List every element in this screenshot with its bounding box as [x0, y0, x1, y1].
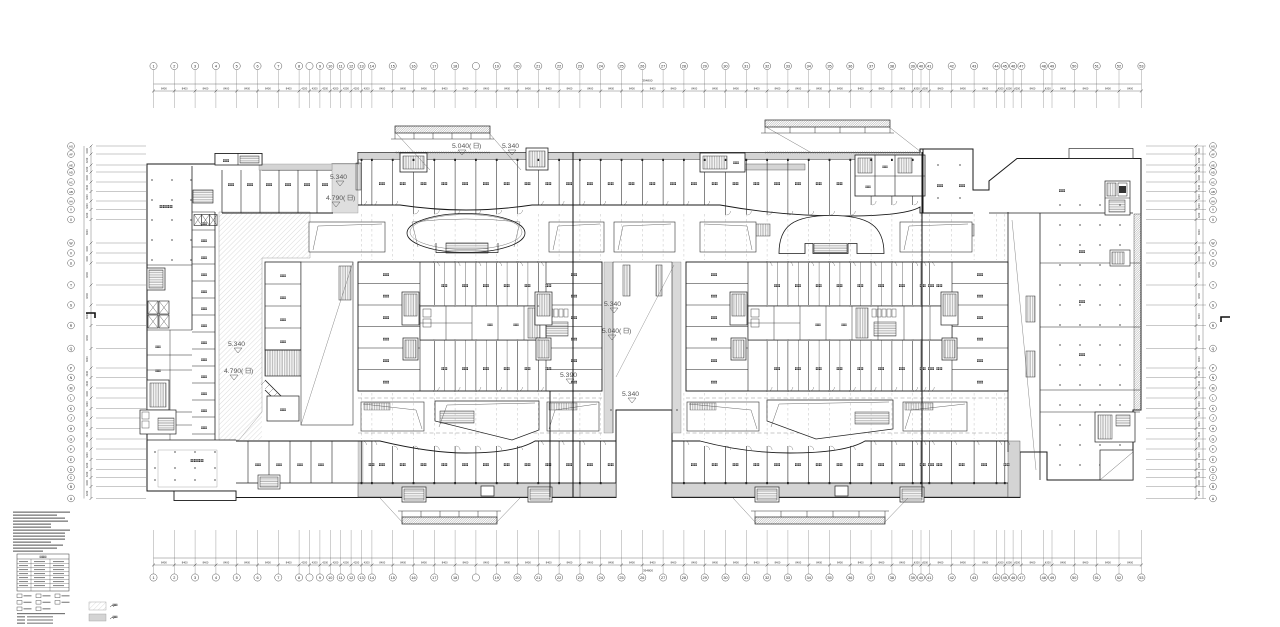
svg-text:8400: 8400 [546, 561, 552, 565]
svg-text:8400: 8400 [775, 561, 781, 565]
svg-text:L: L [1212, 396, 1214, 400]
svg-text:4200: 4200 [1198, 480, 1201, 486]
svg-text:50: 50 [1072, 576, 1076, 580]
svg-text:4200: 4200 [922, 87, 928, 91]
svg-text:T: T [1212, 283, 1214, 287]
svg-text:26: 26 [640, 64, 644, 68]
svg-text:4.790(: 4.790( [224, 368, 244, 375]
svg-text:8400: 8400 [879, 561, 885, 565]
svg-text:43: 43 [972, 64, 976, 68]
svg-text:4200: 4200 [1198, 442, 1201, 448]
svg-text:4200: 4200 [86, 431, 89, 437]
svg-text:394800: 394800 [642, 79, 652, 83]
svg-text:9: 9 [319, 64, 321, 68]
svg-text:51: 51 [1095, 64, 1099, 68]
svg-text:8400: 8400 [899, 561, 905, 565]
svg-text:AF: AF [69, 152, 73, 156]
svg-text:4200: 4200 [998, 87, 1004, 91]
svg-text:37: 37 [869, 576, 873, 580]
svg-text:8400: 8400 [244, 87, 250, 91]
svg-text:4200: 4200 [1198, 212, 1201, 218]
svg-text:52: 52 [1117, 576, 1121, 580]
svg-text:17: 17 [432, 576, 436, 580]
svg-text:21: 21 [536, 576, 540, 580]
svg-text:8400: 8400 [525, 561, 531, 565]
svg-text:4.790(: 4.790( [326, 195, 346, 202]
svg-text:4200: 4200 [86, 212, 89, 218]
svg-text:4200: 4200 [1014, 87, 1020, 91]
svg-text:48: 48 [1042, 64, 1046, 68]
svg-text:32: 32 [765, 576, 769, 580]
svg-text:46: 46 [1011, 64, 1015, 68]
svg-text:35: 35 [827, 576, 831, 580]
svg-text:14: 14 [370, 64, 374, 68]
svg-text:17: 17 [432, 64, 436, 68]
svg-text:AE: AE [1211, 163, 1215, 167]
svg-text:19: 19 [495, 576, 499, 580]
svg-text:4200: 4200 [86, 380, 89, 386]
svg-text:L: L [70, 396, 72, 400]
svg-text:AA: AA [69, 199, 73, 203]
svg-text:4200: 4200 [1198, 462, 1201, 468]
svg-text:40: 40 [919, 64, 923, 68]
svg-text:8400: 8400 [1127, 561, 1133, 565]
svg-text:F: F [1212, 447, 1214, 451]
svg-text:AE: AE [69, 163, 73, 167]
svg-text:8400: 8400 [182, 87, 188, 91]
svg-text:AF: AF [1211, 152, 1215, 156]
svg-text:19: 19 [495, 64, 499, 68]
svg-text:8400: 8400 [244, 561, 250, 565]
svg-text:8400: 8400 [504, 87, 510, 91]
svg-text:5.340: 5.340 [228, 341, 245, 348]
svg-text:M: M [70, 386, 73, 390]
svg-text:8: 8 [298, 576, 300, 580]
svg-text:8400: 8400 [671, 87, 677, 91]
svg-text:4200: 4200 [86, 490, 89, 496]
svg-text:8400: 8400 [442, 561, 448, 565]
svg-text:4200: 4200 [86, 194, 89, 200]
svg-text:8400: 8400 [795, 561, 801, 565]
svg-text:47: 47 [1019, 64, 1023, 68]
svg-text:4200: 4200 [1045, 87, 1051, 91]
svg-text:8400: 8400 [86, 229, 89, 235]
svg-text:4200: 4200 [1045, 561, 1051, 565]
svg-text:AA: AA [1211, 199, 1215, 203]
svg-text:41: 41 [927, 64, 931, 68]
svg-text:4200: 4200 [86, 401, 89, 407]
svg-text:4200: 4200 [998, 561, 1004, 565]
svg-text:8400: 8400 [712, 561, 718, 565]
svg-text:4200: 4200 [333, 561, 339, 565]
svg-text:2: 2 [173, 576, 175, 580]
svg-text:44: 44 [994, 64, 998, 68]
svg-text:8400: 8400 [223, 87, 229, 91]
svg-text:21: 21 [536, 64, 540, 68]
svg-text:8400: 8400 [203, 561, 209, 565]
svg-text:14: 14 [370, 576, 374, 580]
svg-text:8400: 8400 [567, 87, 573, 91]
svg-text:50: 50 [1072, 64, 1076, 68]
svg-text:10: 10 [328, 576, 332, 580]
svg-text:39: 39 [911, 64, 915, 68]
svg-text:AB: AB [69, 190, 73, 194]
svg-text:8400: 8400 [816, 87, 822, 91]
svg-text:4200: 4200 [1198, 471, 1201, 477]
svg-text:22: 22 [557, 64, 561, 68]
svg-text:8400: 8400 [86, 356, 89, 362]
svg-text:8400: 8400 [1198, 272, 1201, 278]
svg-text:4200: 4200 [343, 561, 349, 565]
svg-text:8400: 8400 [982, 87, 988, 91]
svg-text:8400: 8400 [483, 561, 489, 565]
svg-text:8400: 8400 [1083, 561, 1089, 565]
svg-text:8400: 8400 [733, 561, 739, 565]
svg-text:4200: 4200 [364, 561, 370, 565]
svg-text:4200: 4200 [1198, 431, 1201, 437]
svg-text:16: 16 [411, 576, 415, 580]
svg-text:F: F [70, 447, 72, 451]
svg-text:1: 1 [152, 576, 154, 580]
svg-text:8400: 8400 [86, 313, 89, 319]
svg-text:16: 16 [411, 64, 415, 68]
svg-text:4200: 4200 [301, 561, 307, 565]
svg-text:4200: 4200 [1198, 421, 1201, 427]
svg-text:J: J [70, 416, 72, 420]
svg-text:4200: 4200 [1198, 184, 1201, 190]
svg-text:8400: 8400 [421, 561, 427, 565]
svg-text:8400: 8400 [161, 87, 167, 91]
svg-text:11: 11 [339, 64, 343, 68]
svg-text:4200: 4200 [1198, 401, 1201, 407]
svg-text:13: 13 [359, 64, 363, 68]
svg-text:4200: 4200 [86, 411, 89, 417]
svg-text:8400: 8400 [712, 87, 718, 91]
svg-text:4200: 4200 [86, 175, 89, 181]
svg-text:5.340: 5.340 [330, 174, 347, 181]
svg-text:4200: 4200 [86, 166, 89, 172]
svg-text:4200: 4200 [86, 480, 89, 486]
svg-text:22: 22 [557, 576, 561, 580]
svg-text:11: 11 [339, 576, 343, 580]
svg-text:AD: AD [1211, 170, 1215, 174]
svg-text:8400: 8400 [650, 87, 656, 91]
svg-text:8400: 8400 [671, 561, 677, 565]
svg-text:29: 29 [703, 576, 707, 580]
svg-text:8400: 8400 [960, 87, 966, 91]
svg-text:AG: AG [69, 144, 73, 148]
svg-text:4200: 4200 [86, 246, 89, 252]
svg-text:27: 27 [661, 64, 665, 68]
svg-text:40: 40 [919, 576, 923, 580]
svg-text:8400: 8400 [879, 87, 885, 91]
svg-text:4200: 4200 [914, 87, 920, 91]
svg-text:Q: Q [1212, 347, 1215, 351]
svg-text:8400: 8400 [161, 561, 167, 565]
svg-text:29: 29 [703, 64, 707, 68]
svg-text:51: 51 [1095, 576, 1099, 580]
svg-text:44: 44 [994, 576, 998, 580]
svg-text:10: 10 [328, 64, 332, 68]
svg-text:8400: 8400 [691, 87, 697, 91]
svg-text:J: J [1212, 416, 1214, 420]
svg-text:36: 36 [848, 576, 852, 580]
svg-text:4200: 4200 [86, 442, 89, 448]
svg-text:18: 18 [453, 576, 457, 580]
svg-text:8400: 8400 [182, 561, 188, 565]
svg-text:38: 38 [890, 64, 894, 68]
svg-text:4200: 4200 [86, 452, 89, 458]
svg-text:4200: 4200 [1198, 148, 1201, 154]
svg-text:23: 23 [578, 576, 582, 580]
svg-text:8400: 8400 [754, 87, 760, 91]
svg-text:G: G [1212, 437, 1215, 441]
svg-text:3: 3 [194, 576, 196, 580]
svg-text:34: 34 [807, 64, 811, 68]
svg-text:2: 2 [173, 64, 175, 68]
svg-text:8400: 8400 [463, 561, 469, 565]
svg-text:4200: 4200 [1198, 175, 1201, 181]
svg-text:8400: 8400 [837, 87, 843, 91]
svg-text:47: 47 [1019, 576, 1023, 580]
svg-text:4200: 4200 [1198, 256, 1201, 262]
svg-text:33: 33 [786, 576, 790, 580]
svg-text:6: 6 [256, 576, 258, 580]
svg-text:4200: 4200 [343, 87, 349, 91]
svg-text:8400: 8400 [1060, 87, 1066, 91]
svg-text:5.340: 5.340 [622, 391, 639, 398]
svg-text:8400: 8400 [1060, 561, 1066, 565]
svg-text:8400: 8400 [629, 561, 635, 565]
svg-text:8400: 8400 [463, 87, 469, 91]
svg-text:15: 15 [391, 576, 395, 580]
svg-text:26: 26 [640, 576, 644, 580]
svg-text:8400: 8400 [795, 87, 801, 91]
svg-text:36: 36 [848, 64, 852, 68]
svg-text:34: 34 [807, 576, 811, 580]
svg-text:8400: 8400 [1030, 561, 1036, 565]
svg-text:45: 45 [1003, 64, 1007, 68]
svg-text:5.040(: 5.040( [452, 143, 472, 150]
svg-text:): ) [353, 195, 355, 202]
svg-text:4200: 4200 [86, 256, 89, 262]
svg-text:8400: 8400 [754, 561, 760, 565]
svg-text:8400: 8400 [775, 87, 781, 91]
svg-text:5: 5 [236, 64, 238, 68]
svg-text:4200: 4200 [322, 561, 328, 565]
svg-text:41: 41 [927, 576, 931, 580]
svg-text:8400: 8400 [265, 561, 271, 565]
svg-text:8400: 8400 [504, 561, 510, 565]
svg-text:42: 42 [950, 64, 954, 68]
svg-text:33: 33 [786, 64, 790, 68]
svg-text:31: 31 [744, 64, 748, 68]
svg-text:8400: 8400 [1198, 229, 1201, 235]
svg-text:8400: 8400 [400, 87, 406, 91]
svg-text:8400: 8400 [379, 561, 385, 565]
svg-text:3: 3 [194, 64, 196, 68]
svg-text:4200: 4200 [1198, 391, 1201, 397]
svg-text:8400: 8400 [400, 561, 406, 565]
svg-text:4200: 4200 [312, 87, 318, 91]
svg-text:8400: 8400 [650, 561, 656, 565]
svg-text:8400: 8400 [858, 87, 864, 91]
svg-text:4200: 4200 [353, 87, 359, 91]
svg-text:8400: 8400 [546, 87, 552, 91]
svg-text:38: 38 [890, 576, 894, 580]
svg-text:8: 8 [298, 64, 300, 68]
svg-text:4200: 4200 [301, 87, 307, 91]
svg-text:8400: 8400 [1030, 87, 1036, 91]
svg-text:4200: 4200 [1198, 246, 1201, 252]
svg-text:4200: 4200 [86, 203, 89, 209]
svg-text:8400: 8400 [982, 561, 988, 565]
svg-text:AB: AB [1211, 190, 1215, 194]
svg-text:13: 13 [359, 576, 363, 580]
svg-text:4200: 4200 [1006, 561, 1012, 565]
svg-text:31: 31 [744, 576, 748, 580]
svg-text:4200: 4200 [1198, 452, 1201, 458]
svg-text:39: 39 [911, 576, 915, 580]
svg-text:4200: 4200 [1198, 194, 1201, 200]
svg-text:7: 7 [277, 576, 279, 580]
svg-text:4200: 4200 [86, 391, 89, 397]
svg-text:20: 20 [515, 64, 519, 68]
svg-text:T: T [70, 283, 72, 287]
svg-text:8400: 8400 [442, 87, 448, 91]
svg-text:53: 53 [1139, 576, 1143, 580]
svg-text:43: 43 [972, 576, 976, 580]
svg-text:48: 48 [1042, 576, 1046, 580]
svg-text:4200: 4200 [86, 184, 89, 190]
svg-text:4200: 4200 [1198, 157, 1201, 163]
svg-text:4200: 4200 [922, 561, 928, 565]
svg-text:15: 15 [391, 64, 395, 68]
svg-text:5.390: 5.390 [560, 372, 577, 379]
svg-text:4200: 4200 [1198, 411, 1201, 417]
svg-text:G: G [70, 437, 73, 441]
svg-text:4200: 4200 [1198, 203, 1201, 209]
svg-text:25: 25 [619, 576, 623, 580]
svg-text:8400: 8400 [629, 87, 635, 91]
svg-text:4: 4 [215, 64, 217, 68]
svg-text:8400: 8400 [379, 87, 385, 91]
svg-text:28: 28 [682, 576, 686, 580]
svg-text:8400: 8400 [1105, 561, 1111, 565]
svg-text:45: 45 [1003, 576, 1007, 580]
svg-text:30: 30 [723, 64, 727, 68]
svg-text:5.340: 5.340 [604, 301, 621, 308]
svg-text:24: 24 [599, 576, 603, 580]
svg-text:23: 23 [578, 64, 582, 68]
svg-text:8400: 8400 [1198, 293, 1201, 299]
svg-text:AD: AD [69, 170, 73, 174]
svg-text:52: 52 [1117, 64, 1121, 68]
svg-text:8400: 8400 [960, 561, 966, 565]
svg-text:8400: 8400 [286, 87, 292, 91]
svg-text:35: 35 [827, 64, 831, 68]
svg-text:6: 6 [256, 64, 258, 68]
svg-text:5.040(: 5.040( [602, 328, 622, 335]
svg-text:4200: 4200 [333, 87, 339, 91]
svg-text:20: 20 [515, 576, 519, 580]
svg-text:): ) [629, 328, 631, 335]
svg-text:4200: 4200 [86, 157, 89, 163]
svg-text:4200: 4200 [353, 561, 359, 565]
svg-text:8400: 8400 [938, 561, 944, 565]
svg-text:8400: 8400 [525, 87, 531, 91]
svg-text:49: 49 [1050, 64, 1054, 68]
svg-text:8400: 8400 [733, 87, 739, 91]
svg-text:9: 9 [319, 576, 321, 580]
svg-text:8400: 8400 [1198, 356, 1201, 362]
svg-text:): ) [251, 368, 253, 375]
svg-text:53: 53 [1139, 64, 1143, 68]
svg-text:8400: 8400 [587, 87, 593, 91]
svg-text:8400: 8400 [587, 561, 593, 565]
svg-text:28: 28 [682, 64, 686, 68]
svg-text:25: 25 [619, 64, 623, 68]
svg-text:4200: 4200 [86, 370, 89, 376]
svg-text:5.340: 5.340 [502, 143, 519, 150]
svg-text:49: 49 [1050, 576, 1054, 580]
svg-text:8400: 8400 [1083, 87, 1089, 91]
svg-text:4200: 4200 [1198, 166, 1201, 172]
svg-text:4200: 4200 [86, 148, 89, 154]
svg-text:4200: 4200 [364, 87, 370, 91]
svg-text:24: 24 [599, 64, 603, 68]
svg-text:8400: 8400 [567, 561, 573, 565]
svg-text:8400: 8400 [691, 561, 697, 565]
svg-text:4200: 4200 [86, 462, 89, 468]
svg-text:8400: 8400 [1198, 313, 1201, 319]
svg-text:37: 37 [869, 64, 873, 68]
svg-text:7: 7 [277, 64, 279, 68]
svg-text:4200: 4200 [86, 421, 89, 427]
svg-text:Q: Q [70, 347, 73, 351]
svg-text:8400: 8400 [608, 561, 614, 565]
svg-text:27: 27 [661, 576, 665, 580]
svg-text:8400: 8400 [1105, 87, 1111, 91]
svg-text:4200: 4200 [1198, 380, 1201, 386]
svg-text:AC: AC [69, 180, 73, 184]
svg-text:8400: 8400 [858, 561, 864, 565]
svg-text:5: 5 [236, 576, 238, 580]
svg-text:8400: 8400 [837, 561, 843, 565]
svg-text:32: 32 [765, 64, 769, 68]
svg-text:18: 18 [453, 64, 457, 68]
svg-text:4200: 4200 [1198, 490, 1201, 496]
svg-text:1: 1 [152, 64, 154, 68]
svg-text:M: M [1212, 386, 1215, 390]
svg-text:8400: 8400 [86, 272, 89, 278]
svg-text:8400: 8400 [203, 87, 209, 91]
svg-text:): ) [479, 143, 481, 150]
svg-text:4200: 4200 [1006, 87, 1012, 91]
svg-text:4200: 4200 [322, 87, 328, 91]
svg-text:AG: AG [1211, 144, 1215, 148]
svg-text:4: 4 [215, 576, 217, 580]
svg-text:30: 30 [723, 576, 727, 580]
svg-text:8400: 8400 [483, 87, 489, 91]
svg-text:4200: 4200 [312, 561, 318, 565]
svg-text:8400: 8400 [608, 87, 614, 91]
svg-text:4200: 4200 [914, 561, 920, 565]
svg-text:8400: 8400 [86, 293, 89, 299]
svg-text:8400: 8400 [86, 335, 89, 341]
svg-text:12: 12 [349, 576, 353, 580]
svg-text:8400: 8400 [265, 87, 271, 91]
